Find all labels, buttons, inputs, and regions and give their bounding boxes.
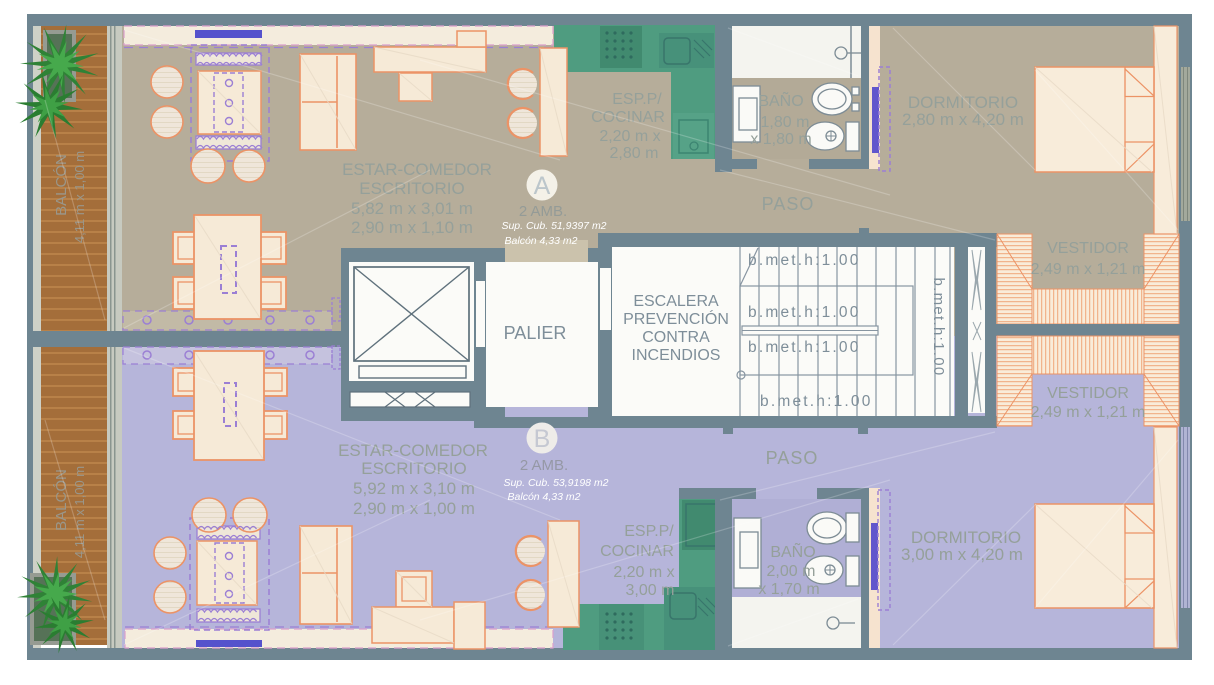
svg-text:4,11 m x 1,00 m: 4,11 m x 1,00 m (72, 151, 87, 243)
svg-text:2 AMB.: 2 AMB. (520, 457, 568, 474)
svg-text:BALCÓN: BALCÓN (53, 154, 70, 216)
svg-text:Balcón 4,33 m2: Balcón 4,33 m2 (505, 235, 578, 247)
svg-text:BAÑO: BAÑO (758, 90, 803, 110)
svg-text:2,49 m x 1,21 m: 2,49 m x 1,21 m (1031, 261, 1146, 278)
svg-text:Sup. Cub. 51,9397 m2: Sup. Cub. 51,9397 m2 (501, 220, 606, 232)
svg-text:B: B (534, 425, 551, 453)
svg-text:Balcón 4,33 m2: Balcón 4,33 m2 (508, 491, 581, 503)
svg-text:INCENDIOS: INCENDIOS (632, 347, 721, 364)
svg-text:2 AMB.: 2 AMB. (519, 203, 567, 220)
svg-text:3,00 m: 3,00 m (626, 582, 675, 599)
svg-text:3,00 m x 4,20 m: 3,00 m x 4,20 m (901, 545, 1023, 564)
svg-text:PASO: PASO (762, 194, 815, 214)
svg-text:ESCALERA: ESCALERA (633, 293, 719, 310)
svg-text:2,49 m x 1,21 m: 2,49 m x 1,21 m (1031, 404, 1146, 421)
svg-text:2,90 m x 1,10 m: 2,90 m x 1,10 m (351, 218, 473, 237)
svg-text:Sup. Cub. 53,9198 m2: Sup. Cub. 53,9198 m2 (503, 477, 608, 489)
svg-text:A: A (534, 172, 551, 200)
svg-text:b.met.h:1.00: b.met.h:1.00 (930, 278, 947, 377)
svg-text:2,90 m x 1,00 m: 2,90 m x 1,00 m (353, 499, 475, 518)
svg-text:ESTAR-COMEDOR: ESTAR-COMEDOR (338, 441, 488, 460)
svg-text:VESTIDOR: VESTIDOR (1047, 240, 1129, 257)
svg-text:1,80 m: 1,80 m (761, 114, 810, 131)
svg-text:COCINAR: COCINAR (591, 109, 665, 126)
svg-text:ESP.P/: ESP.P/ (612, 91, 662, 108)
svg-text:2,20 m x: 2,20 m x (613, 564, 674, 581)
svg-text:5,92 m x 3,10 m: 5,92 m x 3,10 m (353, 479, 475, 498)
svg-text:2,80 m: 2,80 m (610, 145, 659, 162)
svg-text:BAÑO: BAÑO (770, 541, 815, 561)
svg-text:2,20 m x: 2,20 m x (599, 128, 660, 145)
svg-text:VESTIDOR: VESTIDOR (1047, 385, 1129, 402)
svg-text:CONTRA: CONTRA (642, 329, 710, 346)
svg-text:BALCÓN: BALCÓN (53, 469, 70, 531)
svg-text:b.met.h:1.00: b.met.h:1.00 (748, 304, 861, 321)
svg-text:ESP.P/: ESP.P/ (624, 523, 674, 540)
svg-text:ESCRITORIO: ESCRITORIO (359, 179, 464, 198)
svg-text:x 1,80 m: x 1,80 m (750, 131, 811, 148)
svg-text:x 1,70 m: x 1,70 m (758, 581, 819, 598)
svg-text:b.met.h:1.00: b.met.h:1.00 (748, 339, 861, 356)
svg-text:b.met.h:1.00: b.met.h:1.00 (748, 252, 861, 269)
svg-text:2,00 m: 2,00 m (767, 563, 816, 580)
svg-text:2,80 m x 4,20 m: 2,80 m x 4,20 m (902, 110, 1024, 129)
svg-text:b.met.h:1.00: b.met.h:1.00 (760, 393, 873, 410)
svg-text:COCINAR: COCINAR (600, 543, 674, 560)
svg-text:PASO: PASO (766, 448, 819, 468)
svg-text:PALIER: PALIER (504, 323, 567, 343)
svg-text:PREVENCIÓN: PREVENCIÓN (623, 309, 729, 328)
svg-text:4,11 m x 1,00 m: 4,11 m x 1,00 m (72, 466, 87, 558)
